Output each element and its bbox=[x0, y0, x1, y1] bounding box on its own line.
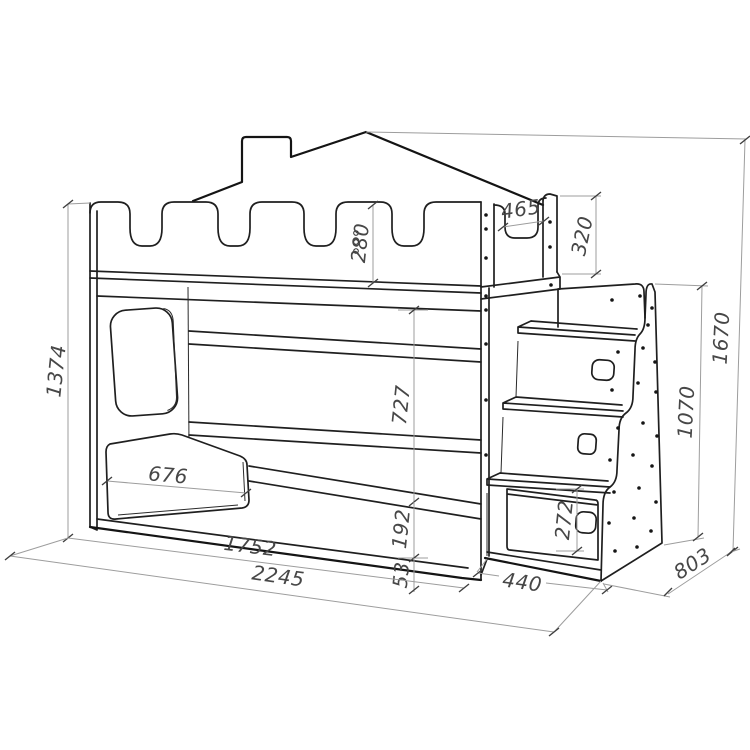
grip-hole-upper bbox=[591, 359, 614, 380]
window-outer bbox=[109, 307, 178, 417]
left-panel-edges bbox=[90, 203, 97, 530]
dim-label-192: 192 bbox=[387, 508, 415, 550]
dim-label-2245: 2245 bbox=[250, 560, 306, 591]
dim-label-272: 272 bbox=[550, 499, 578, 541]
dim-label-440: 440 bbox=[501, 567, 544, 596]
drawer-handle-hole bbox=[575, 511, 596, 533]
dimension-53: 53 bbox=[388, 558, 419, 594]
dim-label-727: 727 bbox=[387, 384, 415, 426]
dim-label-1374: 1374 bbox=[41, 343, 70, 398]
window-cutout bbox=[109, 307, 179, 417]
dimension-1070: 1070 bbox=[655, 282, 708, 545]
dim-label-1670: 1670 bbox=[708, 311, 735, 365]
headboard-right-edge bbox=[188, 287, 189, 447]
dimension-1374: 1374 bbox=[41, 200, 90, 542]
riser-edges bbox=[487, 341, 518, 556]
dim-label-676: 676 bbox=[147, 461, 189, 488]
bunk-bed-technical-drawing: 1374 280 465 320 727 192 53 676 bbox=[0, 0, 750, 750]
dim-label-465: 465 bbox=[499, 194, 542, 223]
end-platform-band bbox=[481, 272, 560, 299]
dimension-1670: 1670 bbox=[366, 132, 750, 555]
tread-1 bbox=[487, 473, 610, 493]
roof-gable-outline bbox=[193, 132, 543, 205]
dimension-280: 280 bbox=[346, 201, 378, 287]
technical-drawing-page: 1374 280 465 320 727 192 53 676 bbox=[0, 0, 750, 750]
dimension-192: 192 bbox=[387, 502, 428, 562]
upper-platform-band bbox=[90, 271, 481, 311]
dim-label-320: 320 bbox=[566, 214, 598, 258]
lower-back-rails bbox=[189, 331, 481, 453]
window-inner-edge bbox=[160, 308, 179, 411]
tread-2 bbox=[503, 397, 623, 417]
dimension-727: 727 bbox=[387, 306, 428, 506]
bed-body bbox=[90, 194, 560, 580]
dimension-320: 320 bbox=[560, 192, 601, 278]
upper-guard-rail bbox=[90, 202, 481, 246]
grip-hole-lower bbox=[577, 433, 596, 454]
dim-label-53: 53 bbox=[388, 560, 415, 589]
dim-label-280: 280 bbox=[346, 222, 374, 264]
roof-line bbox=[193, 132, 543, 205]
dim-label-1752: 1752 bbox=[223, 531, 278, 561]
dim-label-1070: 1070 bbox=[673, 385, 700, 439]
stair-back-rail bbox=[558, 284, 645, 327]
tread-3 bbox=[518, 321, 637, 341]
